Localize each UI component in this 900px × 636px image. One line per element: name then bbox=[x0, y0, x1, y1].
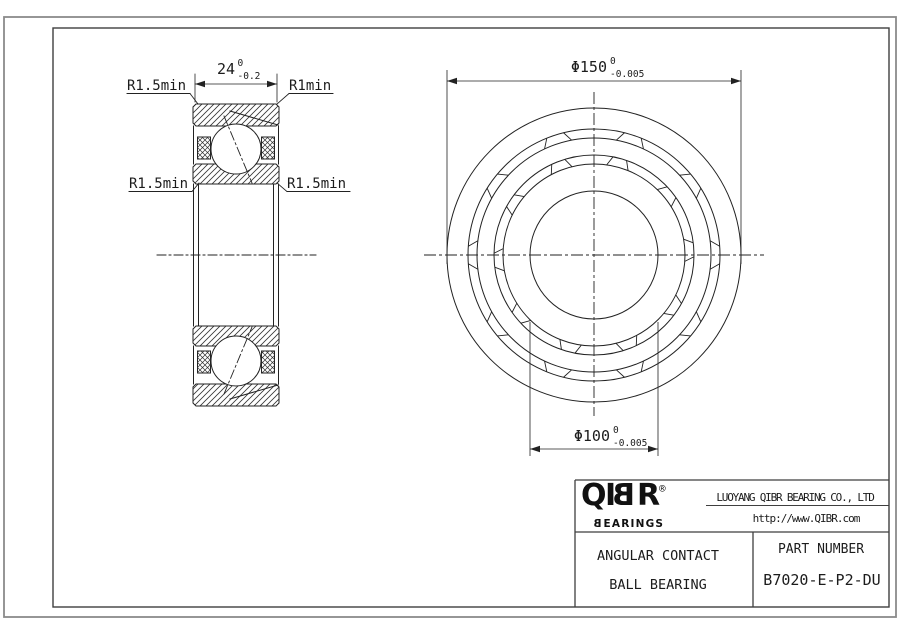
dim-outer-value: Φ150 bbox=[571, 58, 607, 76]
dim-outer-tol-top: 0 bbox=[610, 56, 616, 67]
part-number-label: PART NUMBER bbox=[778, 542, 864, 557]
title-block: Q I B R ® B EARINGS LUOYANG QIBR BEARING… bbox=[575, 478, 889, 607]
outer-ring-bottom-section bbox=[193, 384, 279, 406]
logo-letter-q: Q bbox=[581, 478, 607, 513]
dim-bore-value: Φ100 bbox=[574, 427, 610, 445]
product-type-line1: ANGULAR CONTACT bbox=[597, 548, 719, 564]
logo-sub-b-mirrored: B bbox=[593, 518, 601, 530]
dim-width-tol-bottom: -0.2 bbox=[238, 71, 261, 82]
ball-bottom bbox=[211, 336, 261, 386]
center-lines-front bbox=[424, 92, 764, 416]
label-r-top-right: R1min bbox=[289, 78, 331, 94]
logo-sub-text: EARINGS bbox=[604, 518, 665, 530]
ball-top bbox=[211, 124, 261, 174]
dim-width: 24 0 -0.2 bbox=[195, 58, 277, 102]
bearing-drawing: 24 0 -0.2 R1.5min R1min R1.5min R1.5min bbox=[0, 0, 900, 636]
qibr-logo: Q I B R ® B EARINGS bbox=[581, 478, 666, 530]
dim-width-value: 24 bbox=[217, 60, 235, 78]
logo-letter-r: R bbox=[637, 478, 660, 513]
outer-ring-top-section bbox=[193, 104, 279, 126]
section-view: 24 0 -0.2 R1.5min R1min R1.5min R1.5min bbox=[127, 58, 350, 406]
part-number-value: B7020-E-P2-DU bbox=[763, 571, 880, 589]
label-r-top-left: R1.5min bbox=[127, 78, 186, 94]
arrow-left bbox=[195, 81, 205, 87]
drawing-page: 24 0 -0.2 R1.5min R1min R1.5min R1.5min bbox=[0, 0, 900, 636]
label-r-mid-left: R1.5min bbox=[129, 176, 188, 192]
dim-width-tol-top: 0 bbox=[238, 58, 244, 69]
arrow-left bbox=[530, 446, 540, 452]
dim-outer-tol-bottom: -0.005 bbox=[610, 69, 644, 80]
product-type-line2: BALL BEARING bbox=[609, 577, 707, 593]
outer-page-border bbox=[4, 17, 896, 617]
dim-bore-tol-bottom: -0.005 bbox=[613, 438, 647, 449]
label-r-mid-right: R1.5min bbox=[287, 176, 346, 192]
arrow-right bbox=[267, 81, 277, 87]
registered-mark-icon: ® bbox=[659, 482, 666, 495]
logo-letter-b-mirrored: B bbox=[612, 478, 635, 513]
arrow-right bbox=[648, 446, 658, 452]
company-website: http://www.QIBR.com bbox=[753, 512, 861, 525]
front-view: Φ150 0 -0.005 Φ100 0 -0.005 bbox=[424, 56, 764, 456]
arrow-left bbox=[447, 78, 457, 84]
arrow-right bbox=[731, 78, 741, 84]
company-name: LUOYANG QIBR BEARING CO., LTD bbox=[716, 491, 874, 504]
dim-bore-tol-top: 0 bbox=[613, 425, 619, 436]
